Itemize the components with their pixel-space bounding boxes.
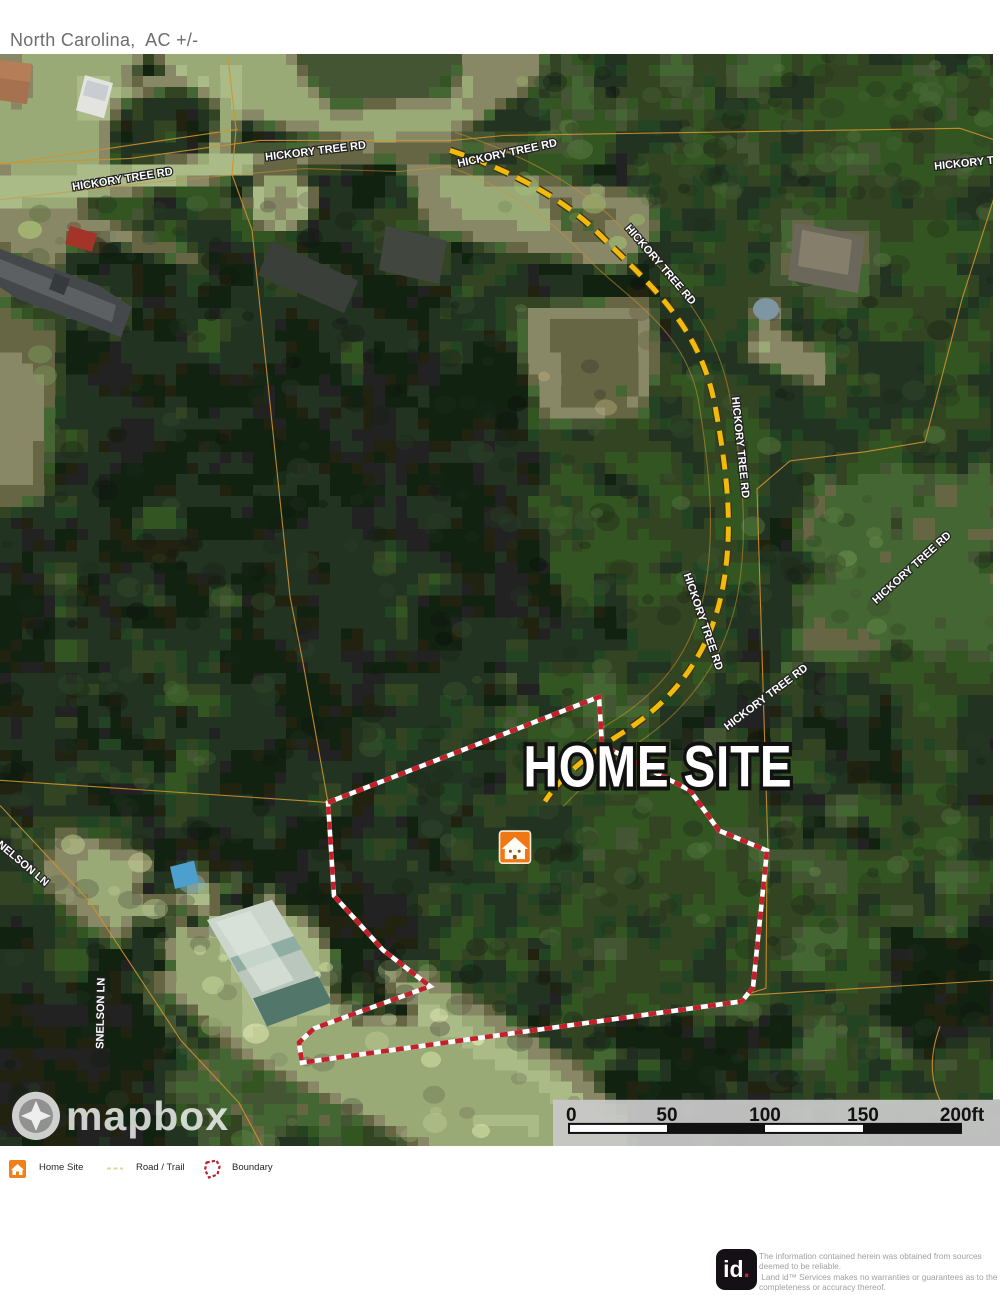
svg-text:100: 100: [749, 1105, 781, 1126]
svg-text:SNELSON LN: SNELSON LN: [94, 978, 107, 1049]
svg-text:150: 150: [847, 1105, 879, 1126]
svg-text:HOME SITE: HOME SITE: [524, 735, 793, 800]
svg-text:200ft: 200ft: [940, 1105, 985, 1126]
svg-text:50: 50: [656, 1105, 677, 1126]
svg-text:0: 0: [566, 1105, 577, 1126]
svg-text:mapbox: mapbox: [66, 1093, 229, 1139]
